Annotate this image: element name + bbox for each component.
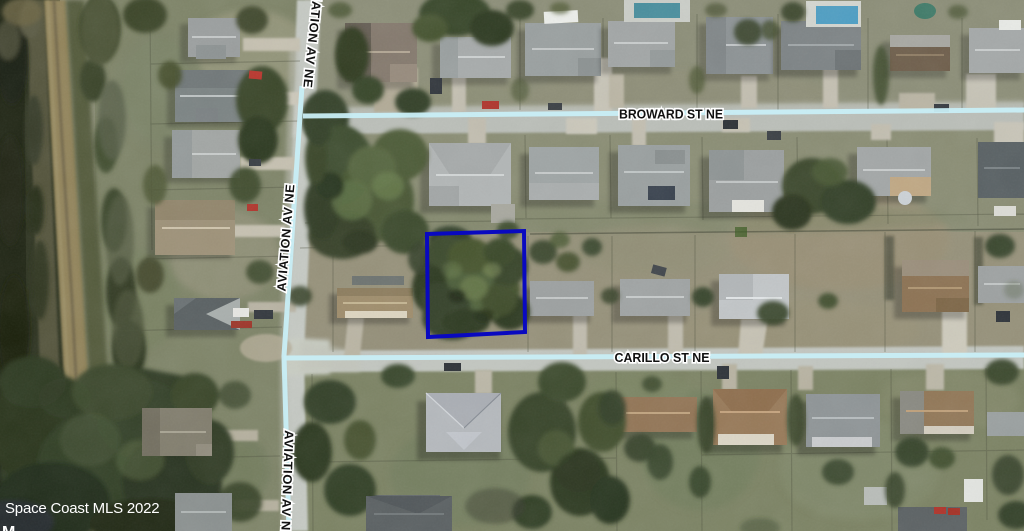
svg-text:M: M [2, 524, 15, 531]
svg-text:BROWARD ST NE: BROWARD ST NE [619, 107, 723, 122]
svg-text:Space Coast MLS 2022: Space Coast MLS 2022 [5, 500, 159, 517]
svg-text:CARILLO ST NE: CARILLO ST NE [615, 350, 710, 365]
